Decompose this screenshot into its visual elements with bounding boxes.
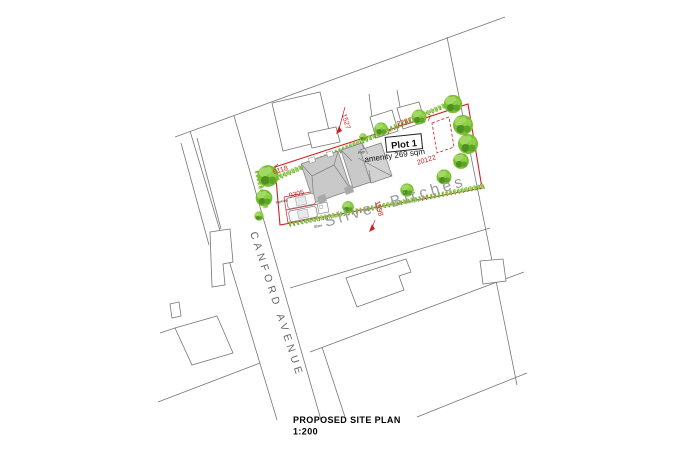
tree-icon [256,190,273,207]
dim-1527: 1527 [340,113,351,130]
east-boundary-line [447,37,517,385]
parking-label: Parking [275,198,288,205]
building-outline [210,229,233,287]
tree-icon [359,133,367,141]
arrowhead [369,224,375,232]
tree-icon [453,153,469,169]
tree-icon [254,211,263,220]
title-scale: 1:200 [293,427,318,437]
building-outline [175,316,233,365]
garage-dashed-outline [432,117,454,153]
road-label-canford-avenue: CANFORD AVENUE [247,230,306,379]
tree-icon [412,110,427,125]
west-parcel-lines [181,138,221,245]
building-outline [346,259,411,307]
site-plan-drawing: CANFORD AVENUE Silver Birches Plot 1 ame… [0,0,700,466]
site-plan-page: CANFORD AVENUE Silver Birches Plot 1 ame… [0,0,700,466]
building-outline [170,302,181,318]
proposed-building-roof [301,143,392,204]
tree-icon [374,122,387,135]
tree-icon [453,115,473,135]
tree-icon [444,95,462,113]
building-outline [480,259,506,284]
tree-icon [458,134,478,154]
store-label: Store [313,224,322,229]
title-proposed-site-plan: PROPOSED SITE PLAN [293,415,401,425]
